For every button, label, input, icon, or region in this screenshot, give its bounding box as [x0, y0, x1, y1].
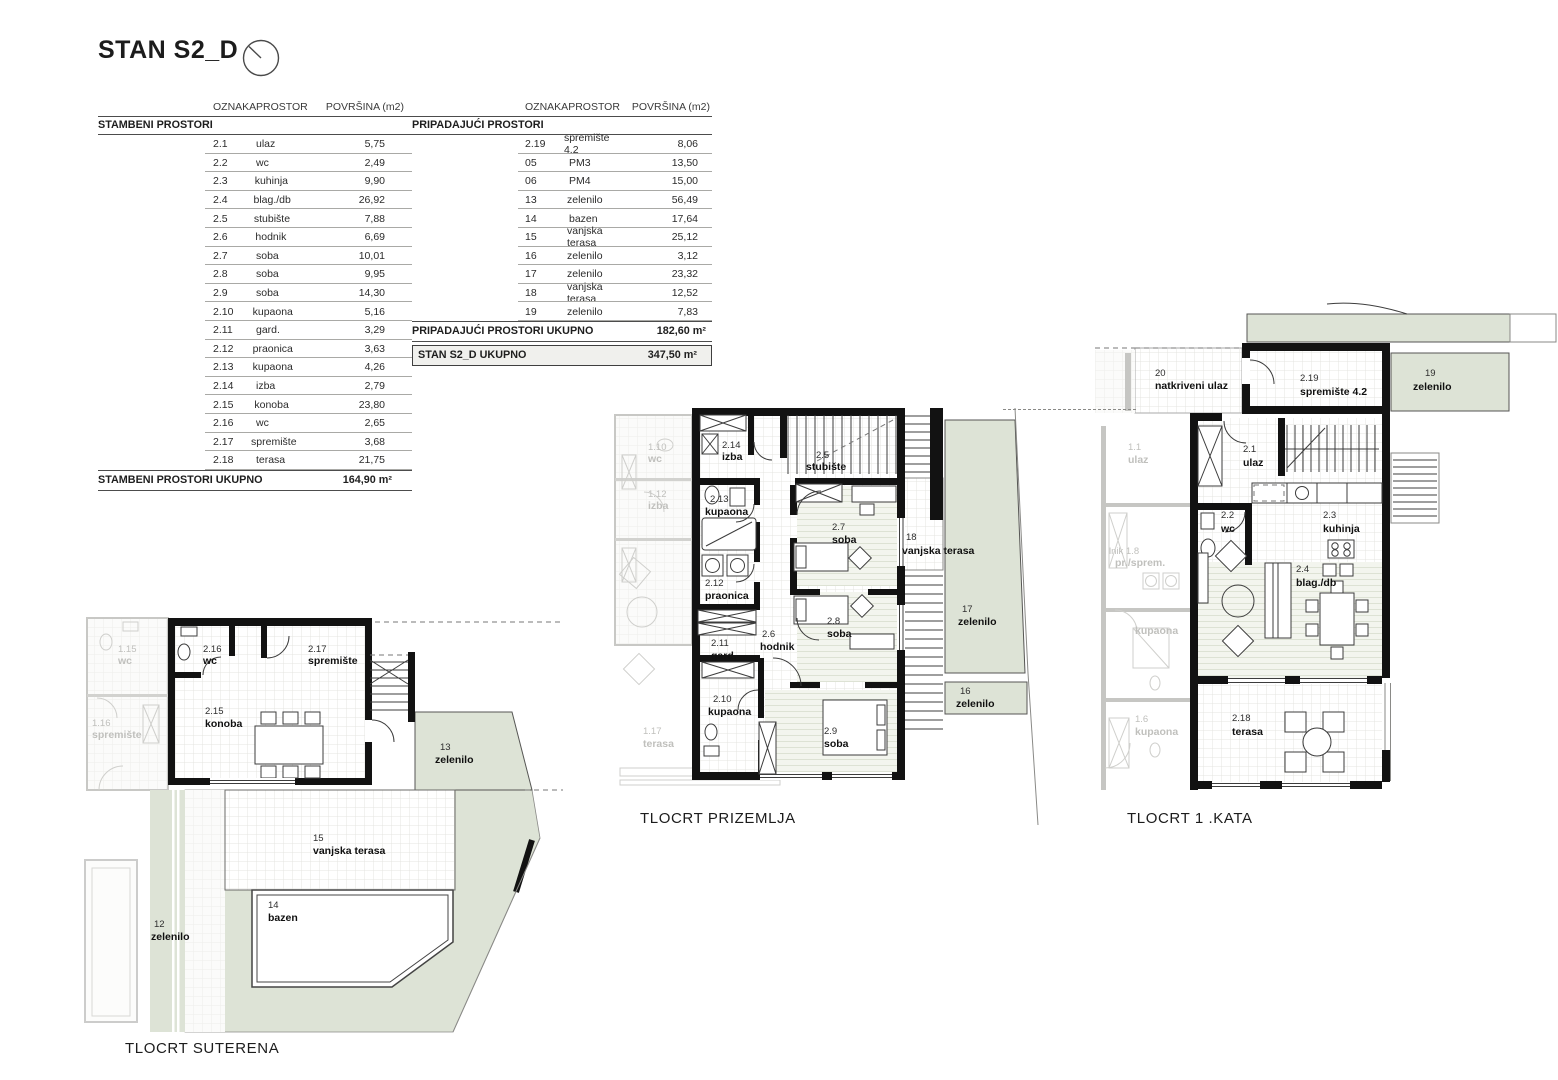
- table-row: 15vanjska terasa25,12: [412, 228, 712, 247]
- svg-text:kupaona: kupaona: [708, 706, 751, 718]
- svg-text:2.2: 2.2: [1221, 510, 1234, 521]
- table-row: 2.10kupaona5,16: [98, 302, 412, 321]
- svg-text:17: 17: [962, 604, 973, 615]
- svg-text:wc: wc: [1220, 523, 1235, 535]
- table-row: 13zelenilo56,49: [412, 191, 712, 210]
- table-row: 14bazen17,64: [412, 209, 712, 228]
- svg-text:1.16: 1.16: [92, 718, 111, 729]
- table-row: 2.3kuhinja9,90: [98, 172, 412, 191]
- sink: [704, 746, 719, 756]
- green-band: [1247, 314, 1510, 342]
- svg-text:soba: soba: [832, 534, 857, 546]
- svg-text:terasa: terasa: [1232, 726, 1263, 738]
- svg-text:1.12: 1.12: [648, 489, 667, 500]
- table-header: OZNAKA PROSTOR POVRŠINA (m2): [412, 97, 712, 116]
- room-label-izba: 2.14izba: [722, 440, 743, 463]
- faded-room-label-izba-112: 1.12izba: [648, 489, 669, 512]
- east-stairs-terrace: [900, 408, 943, 729]
- svg-text:15: 15: [313, 833, 324, 844]
- svg-text:2.5: 2.5: [816, 450, 829, 461]
- svg-text:praonica: praonica: [705, 590, 749, 602]
- svg-text:14: 14: [268, 900, 279, 911]
- caption-suterena: TLOCRT SUTERENA: [125, 1040, 279, 1057]
- table-row: 2.2wc2,49: [98, 154, 412, 173]
- table-row: 17zelenilo23,32: [412, 265, 712, 284]
- svg-text:kuhinja: kuhinja: [1323, 523, 1360, 535]
- svg-text:soba: soba: [827, 628, 852, 640]
- dashed-connector: [1003, 409, 1136, 410]
- table-total: PRIPADAJUĆI PROSTORI UKUPNO 182,60 m²: [412, 321, 712, 342]
- table-row: 2.5stubište7,88: [98, 209, 412, 228]
- plan-sheet: STAN S2_D OZNAKA PROSTOR POVRŠINA (m2) S…: [0, 0, 1558, 1080]
- stove: [1328, 540, 1354, 558]
- svg-text:2.1: 2.1: [1243, 444, 1256, 455]
- toilet: [705, 724, 717, 740]
- table-pripadajuci: OZNAKA PROSTOR POVRŠINA (m2) PRIPADAJUĆI…: [412, 97, 712, 366]
- svg-text:2.6: 2.6: [762, 629, 775, 640]
- faded-room-label-kupaona-16: 1.6kupaona: [1135, 714, 1178, 738]
- col-prostor: PROSTOR: [568, 101, 620, 113]
- svg-text:20: 20: [1155, 368, 1166, 379]
- svg-text:2.8: 2.8: [827, 616, 840, 627]
- dining-table: [255, 712, 323, 778]
- faded-room-label-terasa-117: 1.17terasa: [643, 726, 674, 750]
- svg-text:2.14: 2.14: [722, 440, 741, 451]
- svg-text:pr./sprem.: pr./sprem.: [1115, 557, 1165, 569]
- svg-text:2.12: 2.12: [705, 578, 724, 589]
- svg-text:bazen: bazen: [268, 912, 298, 924]
- table-row: 2.11gard.3,29: [98, 321, 412, 340]
- svg-text:stubište: stubište: [806, 461, 846, 473]
- sink: [730, 488, 745, 506]
- svg-text:lnik 1.8: lnik 1.8: [1109, 546, 1139, 557]
- svg-text:spremište 4.2: spremište 4.2: [1300, 386, 1367, 398]
- external-stairs: [1391, 453, 1439, 523]
- svg-text:2.16: 2.16: [203, 644, 222, 655]
- table-row: 2.4blag./db26,92: [98, 191, 412, 210]
- desk: [852, 486, 896, 502]
- svg-text:kupaona: kupaona: [705, 506, 748, 518]
- svg-text:zelenilo: zelenilo: [435, 754, 474, 766]
- north-compass-icon: [240, 37, 282, 79]
- table-row: 19zelenilo7,83: [412, 302, 712, 321]
- page-title: STAN S2_D: [98, 36, 238, 65]
- svg-text:soba: soba: [824, 738, 849, 750]
- table-row: 2.19spremište 4.28,06: [412, 135, 712, 154]
- faded-room-label-kupaona: kupaona: [1135, 625, 1178, 637]
- svg-text:2.13: 2.13: [710, 494, 729, 505]
- table-row: 2.17spremište3,68: [98, 433, 412, 452]
- col-povrsina: POVRŠINA (m2): [620, 101, 712, 113]
- table-header: OZNAKA PROSTOR POVRŠINA (m2): [98, 97, 412, 116]
- svg-text:wc: wc: [647, 453, 662, 465]
- plan-prizemlje: 2.14izba 2.5stubište 2.13kupaona 2.7soba…: [610, 400, 1055, 832]
- area-15-vanjska-terasa: [225, 790, 455, 890]
- table-row: 2.13kupaona4,26: [98, 358, 412, 377]
- svg-text:spremište: spremište: [92, 729, 142, 741]
- svg-text:2.18: 2.18: [1232, 713, 1251, 724]
- svg-text:blag./db: blag./db: [1296, 577, 1336, 589]
- table-row: 2.15konoba23,80: [98, 395, 412, 414]
- desk: [850, 634, 894, 649]
- table-row: 18vanjska terasa12,52: [412, 284, 712, 303]
- svg-text:2.17: 2.17: [308, 644, 327, 655]
- svg-text:konoba: konoba: [205, 718, 242, 730]
- room-label-wc-22: 2.2wc: [1220, 510, 1235, 535]
- svg-text:ulaz: ulaz: [1128, 454, 1148, 466]
- faded-room-label-ulaz-11: 1.1ulaz: [1128, 442, 1148, 466]
- table-row: 2.6hodnik6,69: [98, 228, 412, 247]
- section-header: STAMBENI PROSTORI: [98, 116, 412, 135]
- window: [210, 778, 295, 786]
- sink: [1201, 513, 1214, 529]
- svg-text:1.1: 1.1: [1128, 442, 1141, 453]
- svg-text:13: 13: [440, 742, 451, 753]
- section-header: PRIPADAJUĆI PROSTORI: [412, 116, 712, 135]
- table-row: 2.8soba9,95: [98, 265, 412, 284]
- svg-text:kupaona: kupaona: [1135, 625, 1178, 637]
- sink: [181, 627, 197, 636]
- svg-text:ulaz: ulaz: [1243, 457, 1263, 469]
- svg-text:kupaona: kupaona: [1135, 726, 1178, 738]
- svg-text:terasa: terasa: [643, 738, 674, 750]
- col-oznaka: OZNAKA: [525, 101, 568, 113]
- faded-room-label-prsprem: lnik 1.8pr./sprem.: [1109, 546, 1165, 569]
- table-row: 2.12praonica3,63: [98, 340, 412, 359]
- svg-text:1.15: 1.15: [118, 644, 137, 655]
- table-row: 2.14izba2,79: [98, 377, 412, 396]
- svg-text:1.6: 1.6: [1135, 714, 1148, 725]
- svg-text:2.10: 2.10: [713, 694, 732, 705]
- table-row: 2.7soba10,01: [98, 247, 412, 266]
- svg-text:spremište: spremište: [308, 655, 358, 667]
- parcel-outline: [1510, 314, 1556, 342]
- tv-cabinet: [1198, 553, 1208, 603]
- plan-suterena: 2.16wc 2.17spremište 2.15konoba 13zeleni…: [85, 600, 565, 1080]
- table-row: 16zelenilo3,12: [412, 247, 712, 266]
- col-povrsina: POVRŠINA (m2): [308, 101, 412, 113]
- caption-kat1: TLOCRT 1 .KATA: [1127, 810, 1253, 827]
- svg-text:vanjska terasa: vanjska terasa: [313, 845, 386, 857]
- svg-text:zelenilo: zelenilo: [1413, 381, 1452, 393]
- svg-text:wc: wc: [202, 655, 217, 667]
- svg-text:2.9: 2.9: [824, 726, 837, 737]
- table-row: 2.16wc2,65: [98, 414, 412, 433]
- svg-text:zelenilo: zelenilo: [956, 698, 995, 710]
- svg-text:natkriveni ulaz: natkriveni ulaz: [1155, 380, 1228, 392]
- svg-text:12: 12: [154, 919, 165, 930]
- svg-text:2.11: 2.11: [711, 638, 729, 649]
- svg-text:2.15: 2.15: [205, 706, 224, 717]
- caption-prizemlje: TLOCRT PRIZEMLJA: [640, 810, 796, 827]
- green-13-zelenilo: [415, 712, 532, 790]
- svg-text:hodnik: hodnik: [760, 641, 795, 653]
- svg-text:zelenilo: zelenilo: [151, 931, 190, 943]
- svg-text:izba: izba: [648, 500, 669, 512]
- table-row: 06PM415,00: [412, 172, 712, 191]
- table-row: 05PM313,50: [412, 154, 712, 173]
- table-row: 2.1ulaz5,75: [98, 135, 412, 154]
- toilet: [178, 644, 190, 660]
- svg-text:18: 18: [906, 532, 917, 543]
- table-row: 2.9soba14,30: [98, 284, 412, 303]
- svg-text:2.7: 2.7: [832, 522, 845, 533]
- grand-total: STAN S2_D UKUPNO 347,50 m²: [412, 345, 712, 366]
- svg-text:2.4: 2.4: [1296, 564, 1309, 575]
- svg-text:vanjska terasa: vanjska terasa: [902, 545, 975, 557]
- svg-text:16: 16: [960, 686, 971, 697]
- stairs: [370, 652, 415, 722]
- unit-suterena: [168, 618, 394, 786]
- table-row: 2.18terasa21,75: [98, 451, 412, 470]
- svg-text:zelenilo: zelenilo: [958, 616, 997, 628]
- dining-table: [1320, 593, 1354, 645]
- table-total: STAMBENI PROSTORI UKUPNO 164,90 m²: [98, 470, 412, 491]
- faded-neighbor-pool: [85, 860, 137, 1022]
- svg-text:izba: izba: [722, 451, 743, 463]
- plan-kat1: 20natkriveni ulaz 2.19spremište 4.2 19ze…: [1095, 298, 1558, 845]
- col-prostor: PROSTOR: [256, 101, 308, 113]
- svg-text:19: 19: [1425, 368, 1436, 379]
- svg-text:wc: wc: [117, 655, 132, 667]
- green-12-zelenilo: [150, 790, 185, 1032]
- svg-text:1.17: 1.17: [643, 726, 662, 737]
- col-oznaka: OZNAKA: [213, 101, 256, 113]
- svg-text:2.3: 2.3: [1323, 510, 1336, 521]
- svg-text:gard.: gard.: [711, 650, 737, 662]
- svg-text:1.10: 1.10: [648, 442, 667, 453]
- table-stambeni: OZNAKA PROSTOR POVRŠINA (m2) STAMBENI PR…: [98, 97, 412, 491]
- svg-text:2.19: 2.19: [1300, 373, 1319, 384]
